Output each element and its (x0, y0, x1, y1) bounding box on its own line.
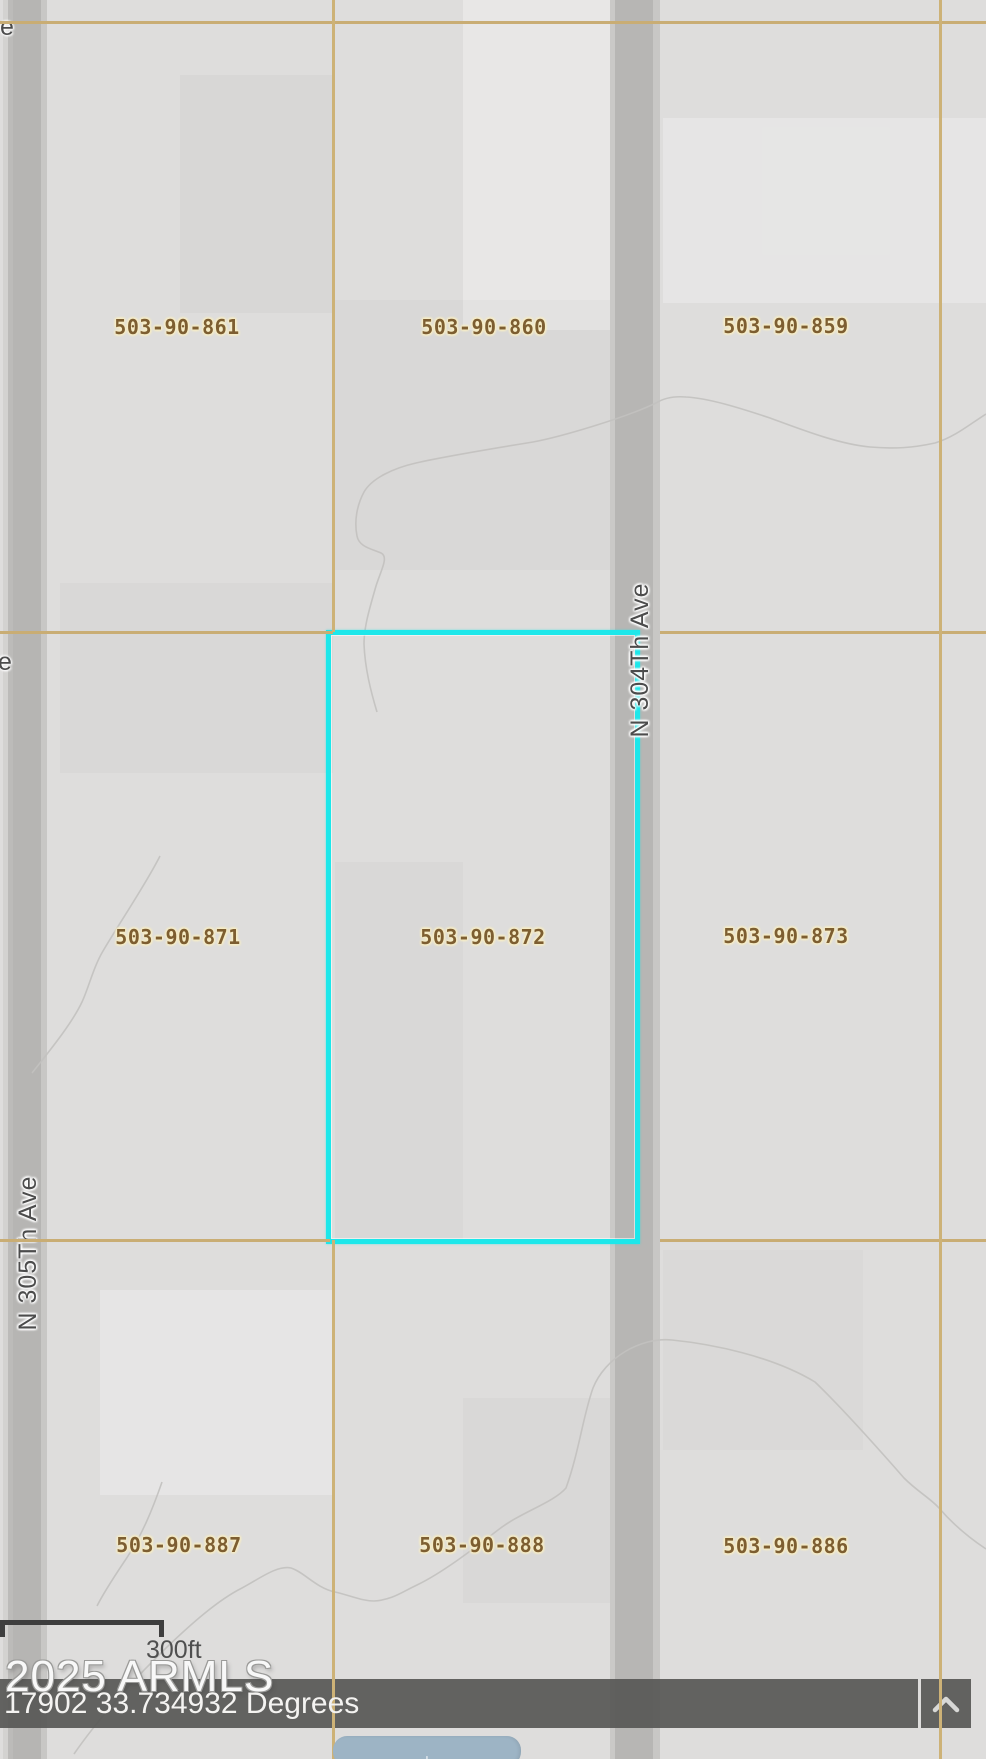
parcel-label: 503-90-887 (116, 1533, 241, 1557)
plus-icon: + (423, 1752, 431, 1759)
parcel-label: 503-90-861 (114, 315, 239, 339)
chevron-up-icon (932, 1695, 960, 1713)
parcel-line-horizontal (0, 21, 986, 24)
parcel-label: 503-90-873 (723, 924, 848, 948)
scale-bar-tick (0, 1620, 5, 1637)
parcel-label: 503-90-860 (421, 315, 546, 339)
scale-bar-line (0, 1620, 164, 1625)
parcel-label: 503-90-871 (115, 925, 240, 949)
parcel-label: 503-90-859 (723, 314, 848, 338)
parcel-line-horizontal (0, 631, 333, 634)
road-label-n304th-ave: N 304Th Ave (626, 500, 654, 820)
parcel-line-horizontal (660, 631, 986, 634)
parcel-line-vertical (939, 0, 942, 1759)
clipped-road-label: e (0, 648, 12, 677)
collapse-statusbar-button[interactable] (921, 1679, 971, 1728)
parcel-label-selected: 503-90-872 (420, 925, 545, 949)
map-control-button[interactable]: + (333, 1736, 521, 1759)
clipped-road-label: e (0, 13, 14, 42)
scale-bar-tick (159, 1620, 164, 1637)
map-canvas[interactable]: 503-90-861 503-90-860 503-90-859 503-90-… (0, 0, 986, 1759)
coordinates-text: 17902 33.734932 Degrees (4, 1679, 359, 1728)
parcel-line-vertical (332, 0, 335, 632)
parcel-label: 503-90-886 (723, 1534, 848, 1558)
parcel-line-horizontal (660, 1239, 986, 1242)
parcel-line-horizontal (0, 1239, 330, 1242)
parcel-label: 503-90-888 (419, 1533, 544, 1557)
road-label-n305th-ave: N 305Th Ave (14, 1093, 42, 1413)
